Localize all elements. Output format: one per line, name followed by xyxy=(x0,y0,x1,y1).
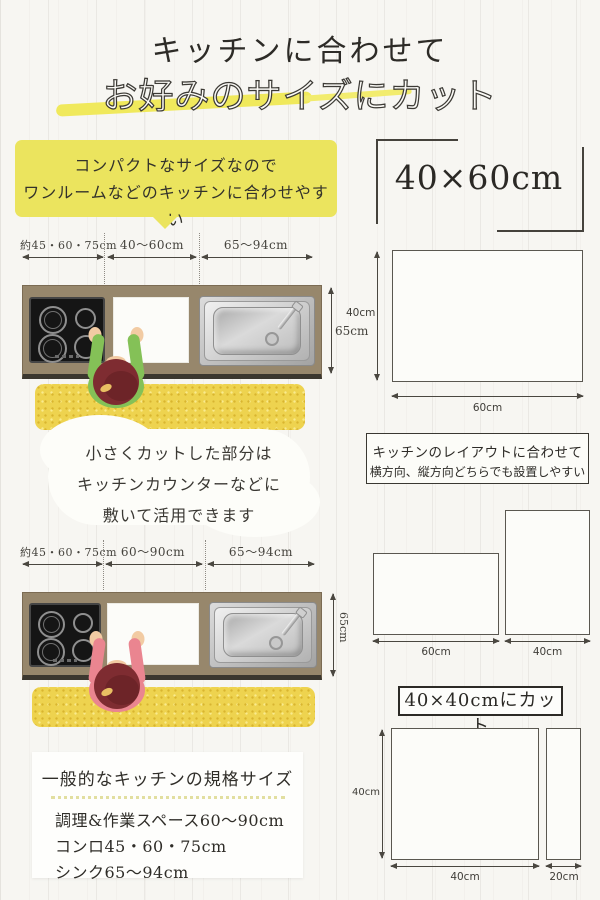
burner-icon xyxy=(38,334,67,363)
dim-label-square: 40cm xyxy=(391,871,539,883)
cloud-note: 小さくカットした部分は キッチンカウンターなどに 敷いて活用できます xyxy=(48,429,310,525)
dim-label-workspace: 40〜60cm xyxy=(106,236,198,253)
dim-arrow xyxy=(373,641,499,642)
dim-arrow-depth xyxy=(333,594,334,676)
dim-label-width: 60cm xyxy=(392,402,583,414)
dim-arrow xyxy=(108,257,196,258)
cloud-line3: 敷いて活用できます xyxy=(48,500,310,531)
layout-note-line1: キッチンのレイアウトに合わせて xyxy=(367,441,588,461)
dim-label-strip: 20cm xyxy=(534,871,594,883)
dim-arrow xyxy=(382,730,383,858)
spec-line: コンロ45・60・75cm xyxy=(55,834,303,860)
dim-label-portrait: 40cm xyxy=(505,646,590,658)
dim-arrow xyxy=(391,866,539,867)
dim-label-depth: 65cm xyxy=(335,324,365,338)
dim-label-sink: 65〜94cm xyxy=(199,236,313,253)
dim-label-workspace: 60〜90cm xyxy=(104,543,202,560)
dim-arrow-depth xyxy=(331,288,332,373)
cloud-line1: 小さくカットした部分は xyxy=(48,429,310,469)
mat-rect-square xyxy=(391,728,539,860)
dim-label-stove: 約45・60・75cm xyxy=(20,544,106,560)
dim-arrow xyxy=(23,257,103,258)
mat-rect-portrait xyxy=(505,510,590,635)
dim-separator xyxy=(104,233,105,284)
kitchen-counter-top xyxy=(22,285,322,379)
speech-bubble-compact: コンパクトなサイズなので ワンルームなどのキッチンに合わせやすい xyxy=(15,140,337,217)
kitchen-counter-top xyxy=(22,592,322,680)
burner-icon xyxy=(38,611,65,638)
person-top-view-icon xyxy=(71,628,163,723)
dim-arrow xyxy=(106,564,202,565)
dim-arrow xyxy=(202,257,312,258)
dim-label-sink: 65〜94cm xyxy=(205,543,317,560)
dim-arrow xyxy=(377,252,378,380)
dim-label-depth: 65cm xyxy=(337,612,350,660)
layout-note-line2: 横方向、縦方向どちらでも設置しやすい xyxy=(367,463,588,480)
dim-arrow xyxy=(546,866,581,867)
product-infographic: キッチンに合わせて お好みのサイズにカット コンパクトなサイズなので ワンルーム… xyxy=(0,0,600,900)
bubble-line1: コンパクトなサイズなので xyxy=(15,140,337,179)
spec-line: 調理&作業スペース60〜90cm xyxy=(55,808,303,834)
layout-note-box: キッチンのレイアウトに合わせて 横方向、縦方向どちらでも設置しやすい xyxy=(366,433,589,484)
dim-separator xyxy=(199,233,200,284)
cut-section-title: 40×40cmにカット xyxy=(398,686,563,716)
dim-label-stove: 約45・60・75cm xyxy=(20,237,106,253)
dim-separator xyxy=(205,540,206,590)
dim-label-landscape: 60cm xyxy=(373,646,499,658)
drain-icon xyxy=(265,332,279,346)
spec-box-title: 一般的なキッチンの規格サイズ xyxy=(32,765,303,790)
dim-arrow xyxy=(505,641,590,642)
spec-line: シンク65〜94cm xyxy=(55,860,303,886)
dim-label-height: 40cm xyxy=(346,307,374,319)
dotted-divider xyxy=(51,796,285,799)
sink-icon xyxy=(199,296,315,366)
page-title: キッチンに合わせて xyxy=(0,26,600,70)
dim-arrow xyxy=(208,564,314,565)
dim-separator xyxy=(103,540,104,590)
person-top-view-icon xyxy=(70,324,162,419)
spec-box: 一般的なキッチンの規格サイズ 調理&作業スペース60〜90cm コンロ45・60… xyxy=(32,752,303,878)
cloud-line2: キッチンカウンターなどに xyxy=(48,469,310,500)
dim-arrow xyxy=(23,564,102,565)
featured-size-label: 40×60cm xyxy=(376,158,582,197)
dim-arrow xyxy=(392,396,583,397)
mat-rect-landscape xyxy=(373,553,499,635)
dim-label-cut-height: 40cm xyxy=(352,787,379,798)
speech-bubble-tail xyxy=(152,216,178,229)
sink-icon xyxy=(209,602,317,668)
page-subtitle: お好みのサイズにカット xyxy=(0,68,600,119)
mat-rect-strip xyxy=(546,728,581,860)
mat-rect-featured xyxy=(392,250,583,382)
burner-icon xyxy=(39,306,67,334)
